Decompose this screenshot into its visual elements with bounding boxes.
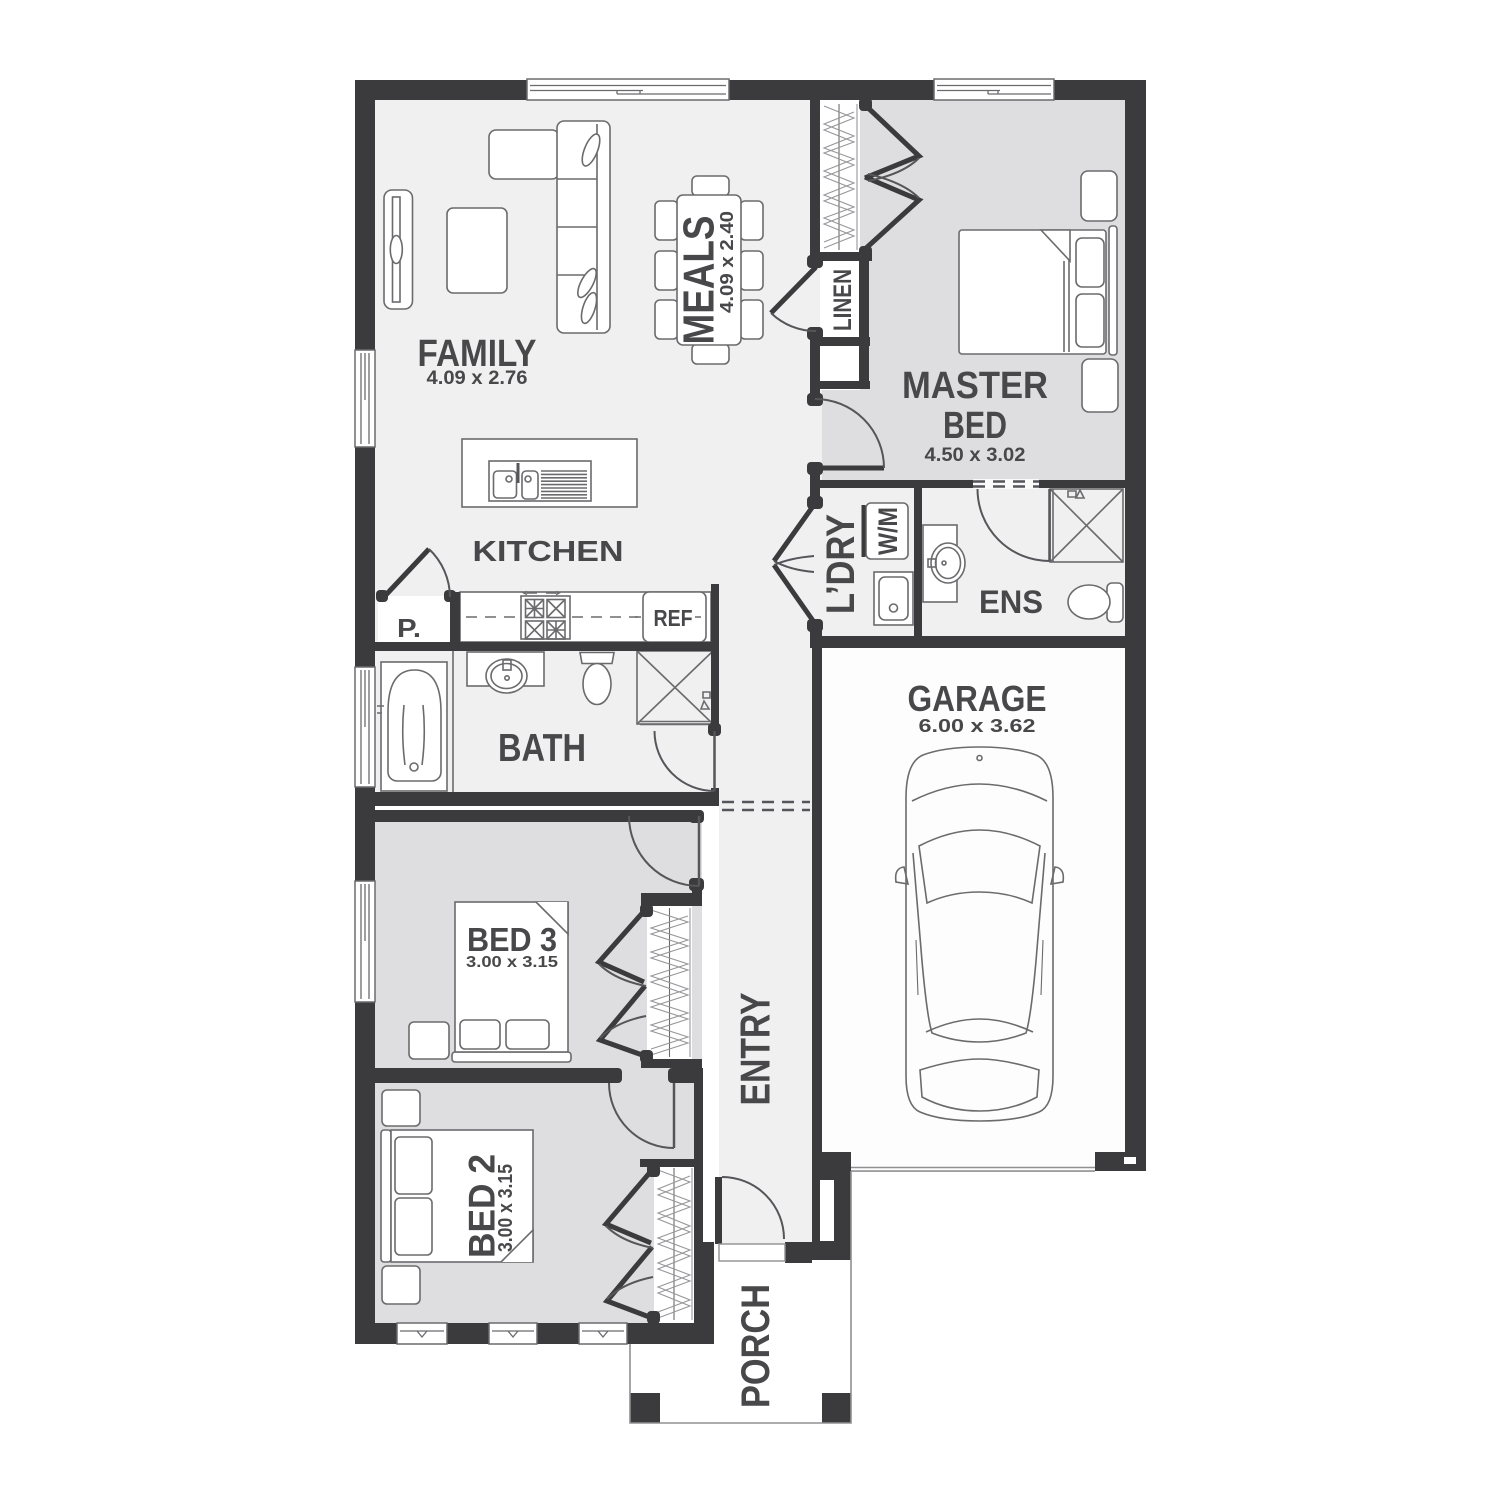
svg-text:3.00 x 3.15: 3.00 x 3.15 bbox=[495, 1164, 517, 1252]
svg-text:KITCHEN: KITCHEN bbox=[473, 536, 624, 568]
svg-text:4.09 x 2.76: 4.09 x 2.76 bbox=[427, 368, 528, 389]
svg-text:MASTER: MASTER bbox=[902, 365, 1048, 407]
svg-text:GARAGE: GARAGE bbox=[908, 678, 1047, 719]
svg-text:4.09 x 2.40: 4.09 x 2.40 bbox=[717, 211, 737, 313]
svg-text:LINEN: LINEN bbox=[829, 269, 857, 331]
svg-text:BATH: BATH bbox=[498, 727, 586, 770]
svg-text:BED 3: BED 3 bbox=[467, 921, 557, 958]
svg-text:L’DRY: L’DRY bbox=[819, 514, 863, 614]
svg-text:4.50 x 3.02: 4.50 x 3.02 bbox=[925, 445, 1026, 466]
svg-text:3.00 x 3.15: 3.00 x 3.15 bbox=[466, 954, 558, 971]
svg-text:REF: REF bbox=[654, 605, 693, 631]
svg-text:P.: P. bbox=[397, 613, 421, 643]
svg-text:ENS: ENS bbox=[979, 584, 1043, 620]
svg-text:W/M: W/M bbox=[873, 507, 903, 555]
svg-text:ENTRY: ENTRY bbox=[732, 993, 779, 1106]
svg-text:6.00 x 3.62: 6.00 x 3.62 bbox=[919, 716, 1036, 736]
svg-text:PORCH: PORCH bbox=[734, 1284, 778, 1408]
svg-text:BED: BED bbox=[943, 405, 1007, 447]
